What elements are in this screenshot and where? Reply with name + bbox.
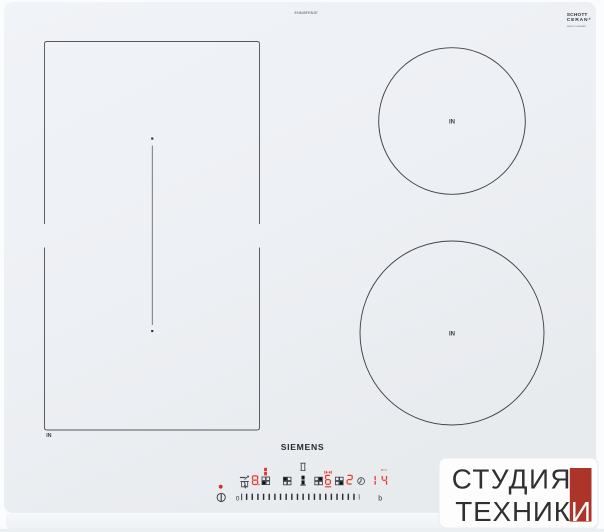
svg-text:ТЕХНИКИ: ТЕХНИКИ xyxy=(455,496,592,527)
svg-text:IN: IN xyxy=(46,433,52,439)
svg-text:b: b xyxy=(378,495,382,502)
svg-text:IN: IN xyxy=(449,331,455,337)
svg-text:MADE IN GERMANY: MADE IN GERMANY xyxy=(567,25,587,28)
svg-text:SIEMENS: SIEMENS xyxy=(281,442,325,452)
svg-text:EH645FEB1E: EH645FEB1E xyxy=(295,11,319,15)
svg-text:IN: IN xyxy=(449,119,455,125)
svg-text:SCHOTT: SCHOTT xyxy=(567,12,588,18)
svg-text:СТУДИЯ: СТУДИЯ xyxy=(452,463,572,494)
svg-text:CERAN®: CERAN® xyxy=(567,17,592,23)
svg-text:0: 0 xyxy=(236,495,240,502)
svg-text:MIN: MIN xyxy=(381,468,387,472)
